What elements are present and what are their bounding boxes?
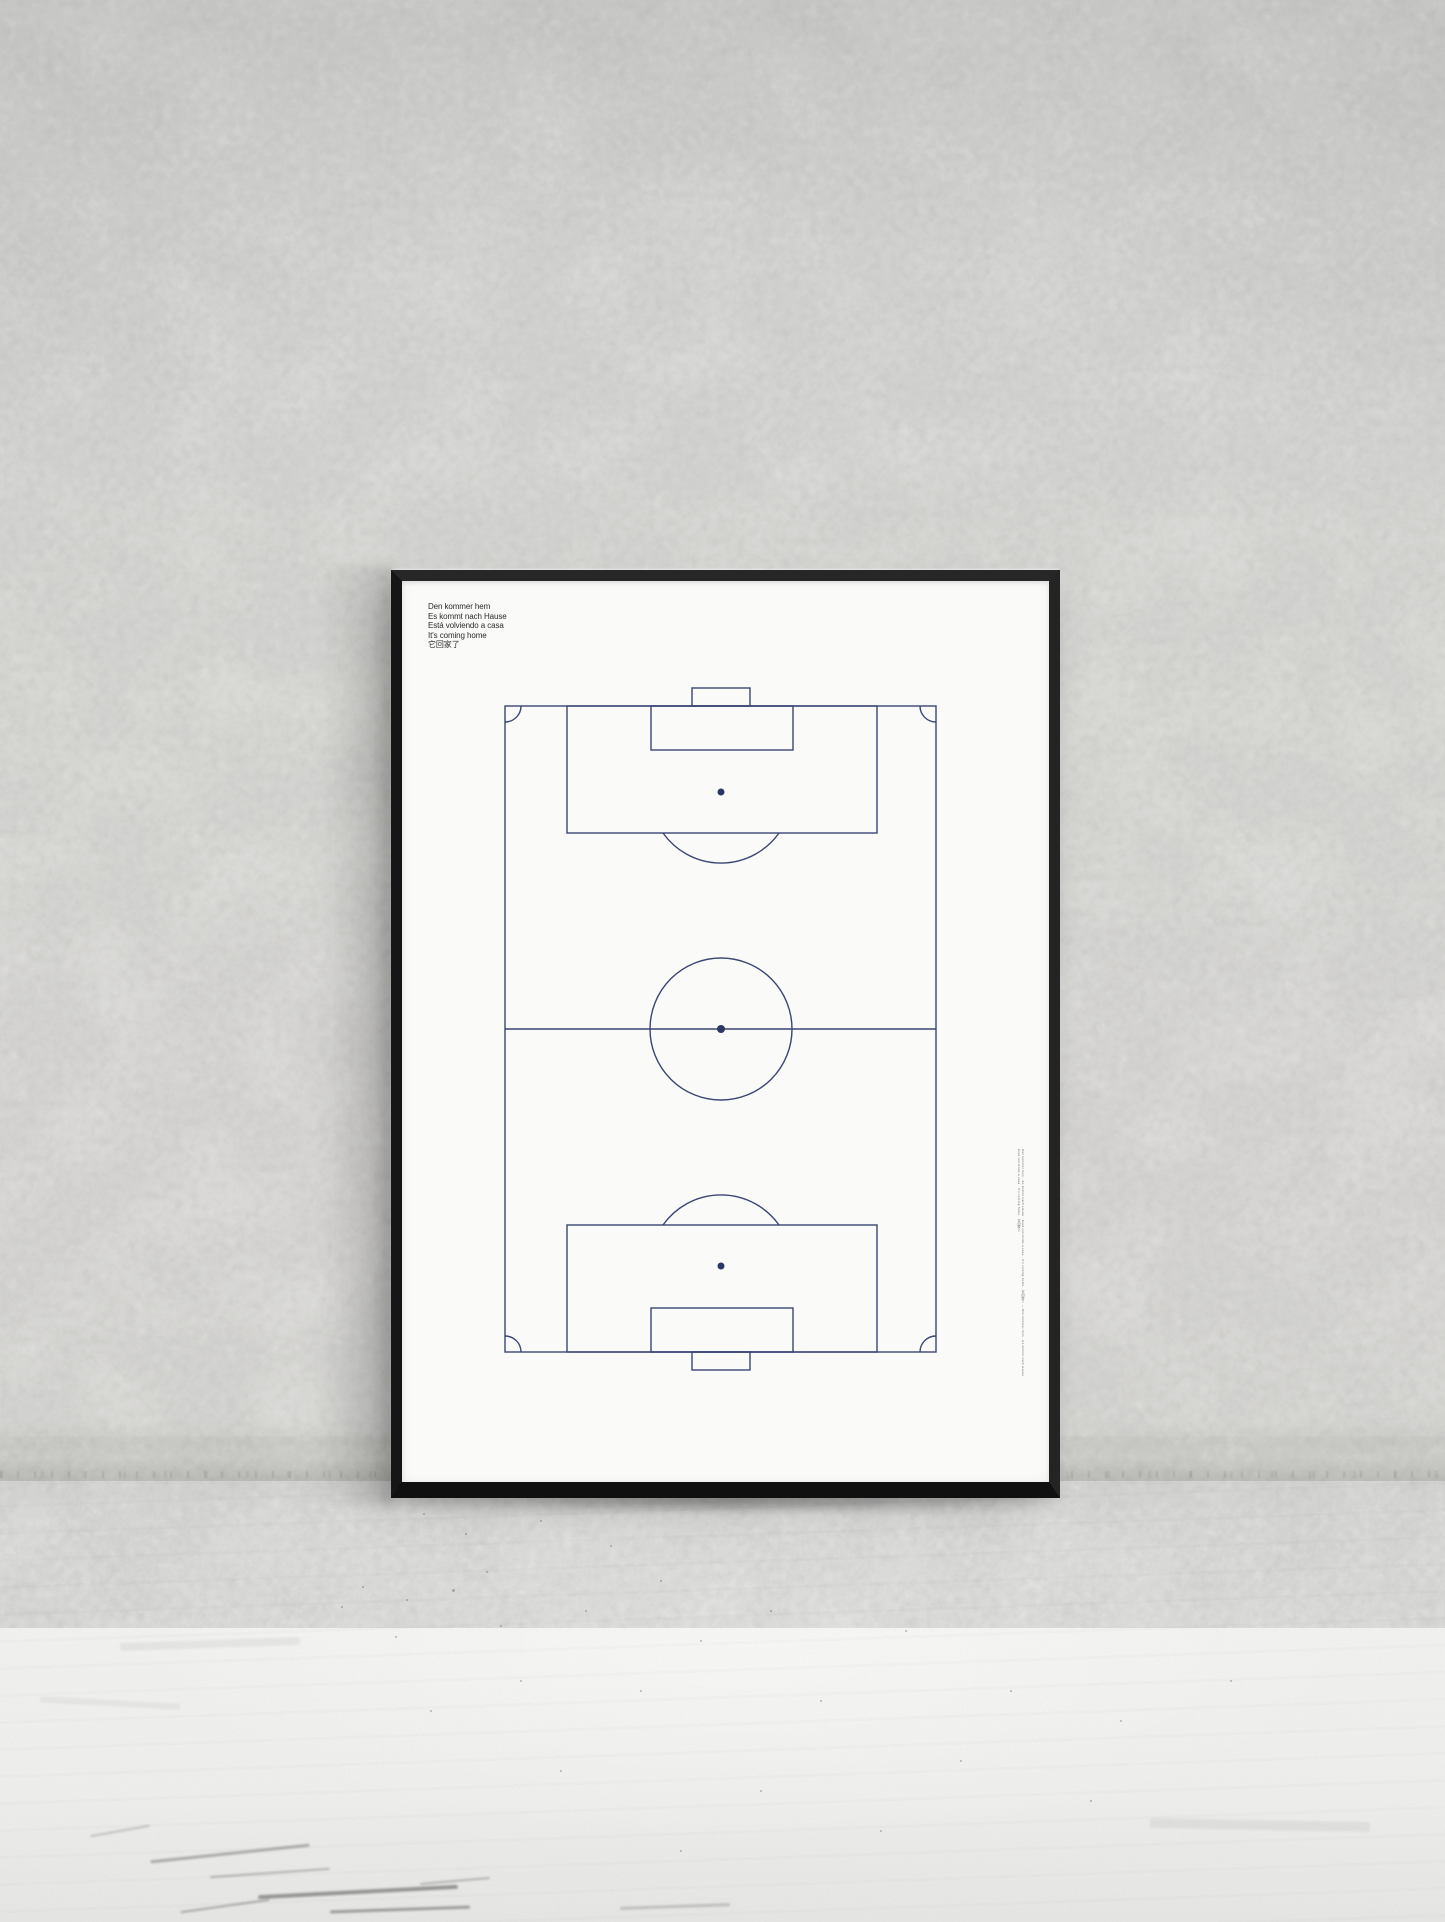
fine-print-vertical: Den kommer hem · Es kommt nach Hause · E… (1017, 1149, 1025, 1387)
photo-scene: Den kommer hem Es kommt nach Hause Está … (0, 0, 1445, 1922)
floor-speck (660, 1580, 662, 1582)
frame-cast-shadow (318, 566, 394, 1506)
floor-speck (680, 1850, 682, 1852)
poster-frame: Den kommer hem Es kommt nach Hause Está … (391, 570, 1060, 1498)
floor-speck (362, 1586, 364, 1588)
floor-speck (760, 1790, 762, 1792)
penalty-area-bottom (567, 1225, 877, 1352)
goal-area-top (651, 706, 793, 750)
penalty-spot-top (718, 789, 725, 796)
floor-speck (960, 1760, 962, 1762)
floor-speck (430, 1710, 432, 1712)
floor-speck (395, 1636, 397, 1638)
floor-speck (770, 1610, 772, 1612)
floor-speck (880, 1830, 882, 1832)
floor-speck (465, 1533, 467, 1535)
corner-arc-bottom-left (505, 1336, 521, 1352)
centre-spot (717, 1025, 725, 1033)
corner-arc-top-left (505, 706, 521, 722)
penalty-area-top (567, 706, 877, 833)
floor-speck (452, 1589, 455, 1592)
penalty-arc-top (663, 833, 779, 863)
floor-speck (1010, 1690, 1012, 1692)
floor-speck (585, 1610, 587, 1612)
floor-speck (700, 1640, 702, 1642)
floor-speck (1090, 1800, 1092, 1802)
floor-speck (500, 1625, 502, 1627)
floor-speck (406, 1599, 408, 1601)
goal-bottom (692, 1352, 750, 1370)
floor-speck (560, 1770, 562, 1772)
floor-speck (540, 1520, 542, 1522)
floor-speck (486, 1571, 488, 1573)
floor-speck (640, 1690, 642, 1692)
floor-speck (610, 1545, 612, 1547)
corner-arc-bottom-right (920, 1336, 936, 1352)
goal-area-bottom (651, 1308, 793, 1352)
floor-speck (1120, 1720, 1122, 1722)
floor-speck (1230, 1680, 1232, 1682)
corner-arc-top-right (920, 706, 936, 722)
penalty-spot-bottom (718, 1263, 725, 1270)
floor-speck (520, 1680, 522, 1682)
penalty-arc-bottom (663, 1195, 779, 1225)
floor-speck (341, 1606, 343, 1608)
floor-speck (820, 1700, 822, 1702)
floor-speck (905, 1630, 907, 1632)
poster-sheet: Den kommer hem Es kommt nach Hause Está … (402, 581, 1049, 1482)
football-pitch-diagram (402, 581, 1049, 1482)
goal-top (692, 688, 750, 706)
